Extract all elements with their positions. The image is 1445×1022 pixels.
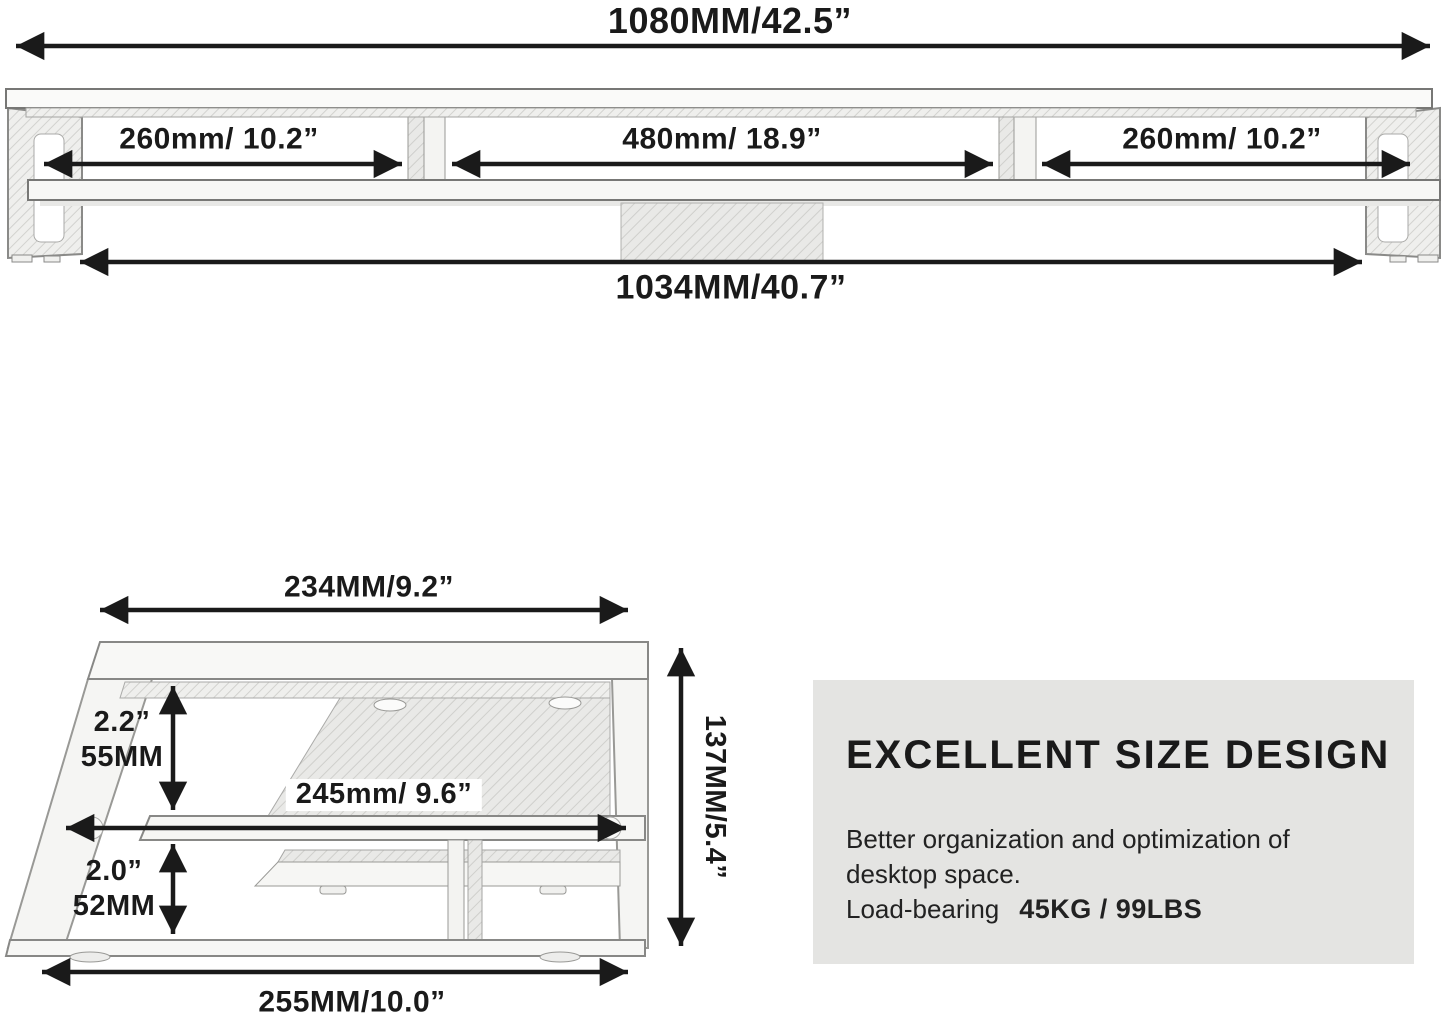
label-upper-clearance-in: 2.2” xyxy=(81,705,164,740)
front-view-drawing xyxy=(6,89,1440,262)
front-foot xyxy=(1418,255,1438,262)
side-foot xyxy=(70,952,110,962)
label-base-width: 1034MM/40.7” xyxy=(616,269,847,306)
label-shelf-depth: 245mm/ 9.6” xyxy=(286,779,482,811)
info-box-line2: desktop space. xyxy=(846,857,1384,892)
info-box: EXCELLENT SIZE DESIGN Better organizatio… xyxy=(813,680,1414,964)
info-box-load-line: Load-bearing 45KG / 99LBS xyxy=(846,892,1384,927)
label-lower-clearance: 2.0” 52MM xyxy=(73,854,156,924)
info-box-heading: EXCELLENT SIZE DESIGN xyxy=(846,733,1384,778)
label-base-depth: 255MM/10.0” xyxy=(258,986,445,1019)
side-post xyxy=(448,840,464,940)
product-dimension-diagram: 1080MM/42.5” 260mm/ 10.2” 480mm/ 18.9” 2… xyxy=(0,0,1445,1022)
label-lower-clearance-mm: 52MM xyxy=(73,889,156,924)
info-box-body: Better organization and optimization of … xyxy=(846,822,1384,927)
side-lower-bar xyxy=(255,862,620,886)
side-lower-foot xyxy=(540,886,566,894)
front-foot xyxy=(1390,256,1406,262)
front-slab-underside xyxy=(26,108,1416,117)
side-lower-foot xyxy=(320,886,346,894)
front-foot xyxy=(12,255,32,262)
label-lower-clearance-in: 2.0” xyxy=(73,854,156,889)
load-bearing-label: Load-bearing xyxy=(846,892,999,927)
front-center-panel xyxy=(621,203,823,262)
front-top-slab xyxy=(6,89,1432,108)
label-upper-clearance: 2.2” 55MM xyxy=(81,705,164,775)
load-bearing-value: 45KG / 99LBS xyxy=(1019,892,1202,927)
side-slab-underside xyxy=(120,682,610,698)
label-right-section: 260mm/ 10.2” xyxy=(1122,123,1321,156)
label-top-depth: 234MM/9.2” xyxy=(284,571,454,604)
label-total-height: 137MM/5.4” xyxy=(698,715,730,880)
front-shelf-bar xyxy=(28,180,1440,200)
front-foot xyxy=(44,256,60,262)
info-box-line1: Better organization and optimization of xyxy=(846,822,1384,857)
side-screw-hole xyxy=(549,697,581,709)
label-middle-section: 480mm/ 18.9” xyxy=(622,123,821,156)
side-foot xyxy=(540,952,580,962)
side-top-slab xyxy=(88,642,648,679)
side-post-shaded xyxy=(468,840,482,940)
side-right-leg xyxy=(612,679,648,948)
label-upper-clearance-mm: 55MM xyxy=(81,740,164,775)
label-overall-width: 1080MM/42.5” xyxy=(608,1,852,41)
side-screw-hole xyxy=(374,699,406,711)
label-left-section: 260mm/ 10.2” xyxy=(119,123,318,156)
